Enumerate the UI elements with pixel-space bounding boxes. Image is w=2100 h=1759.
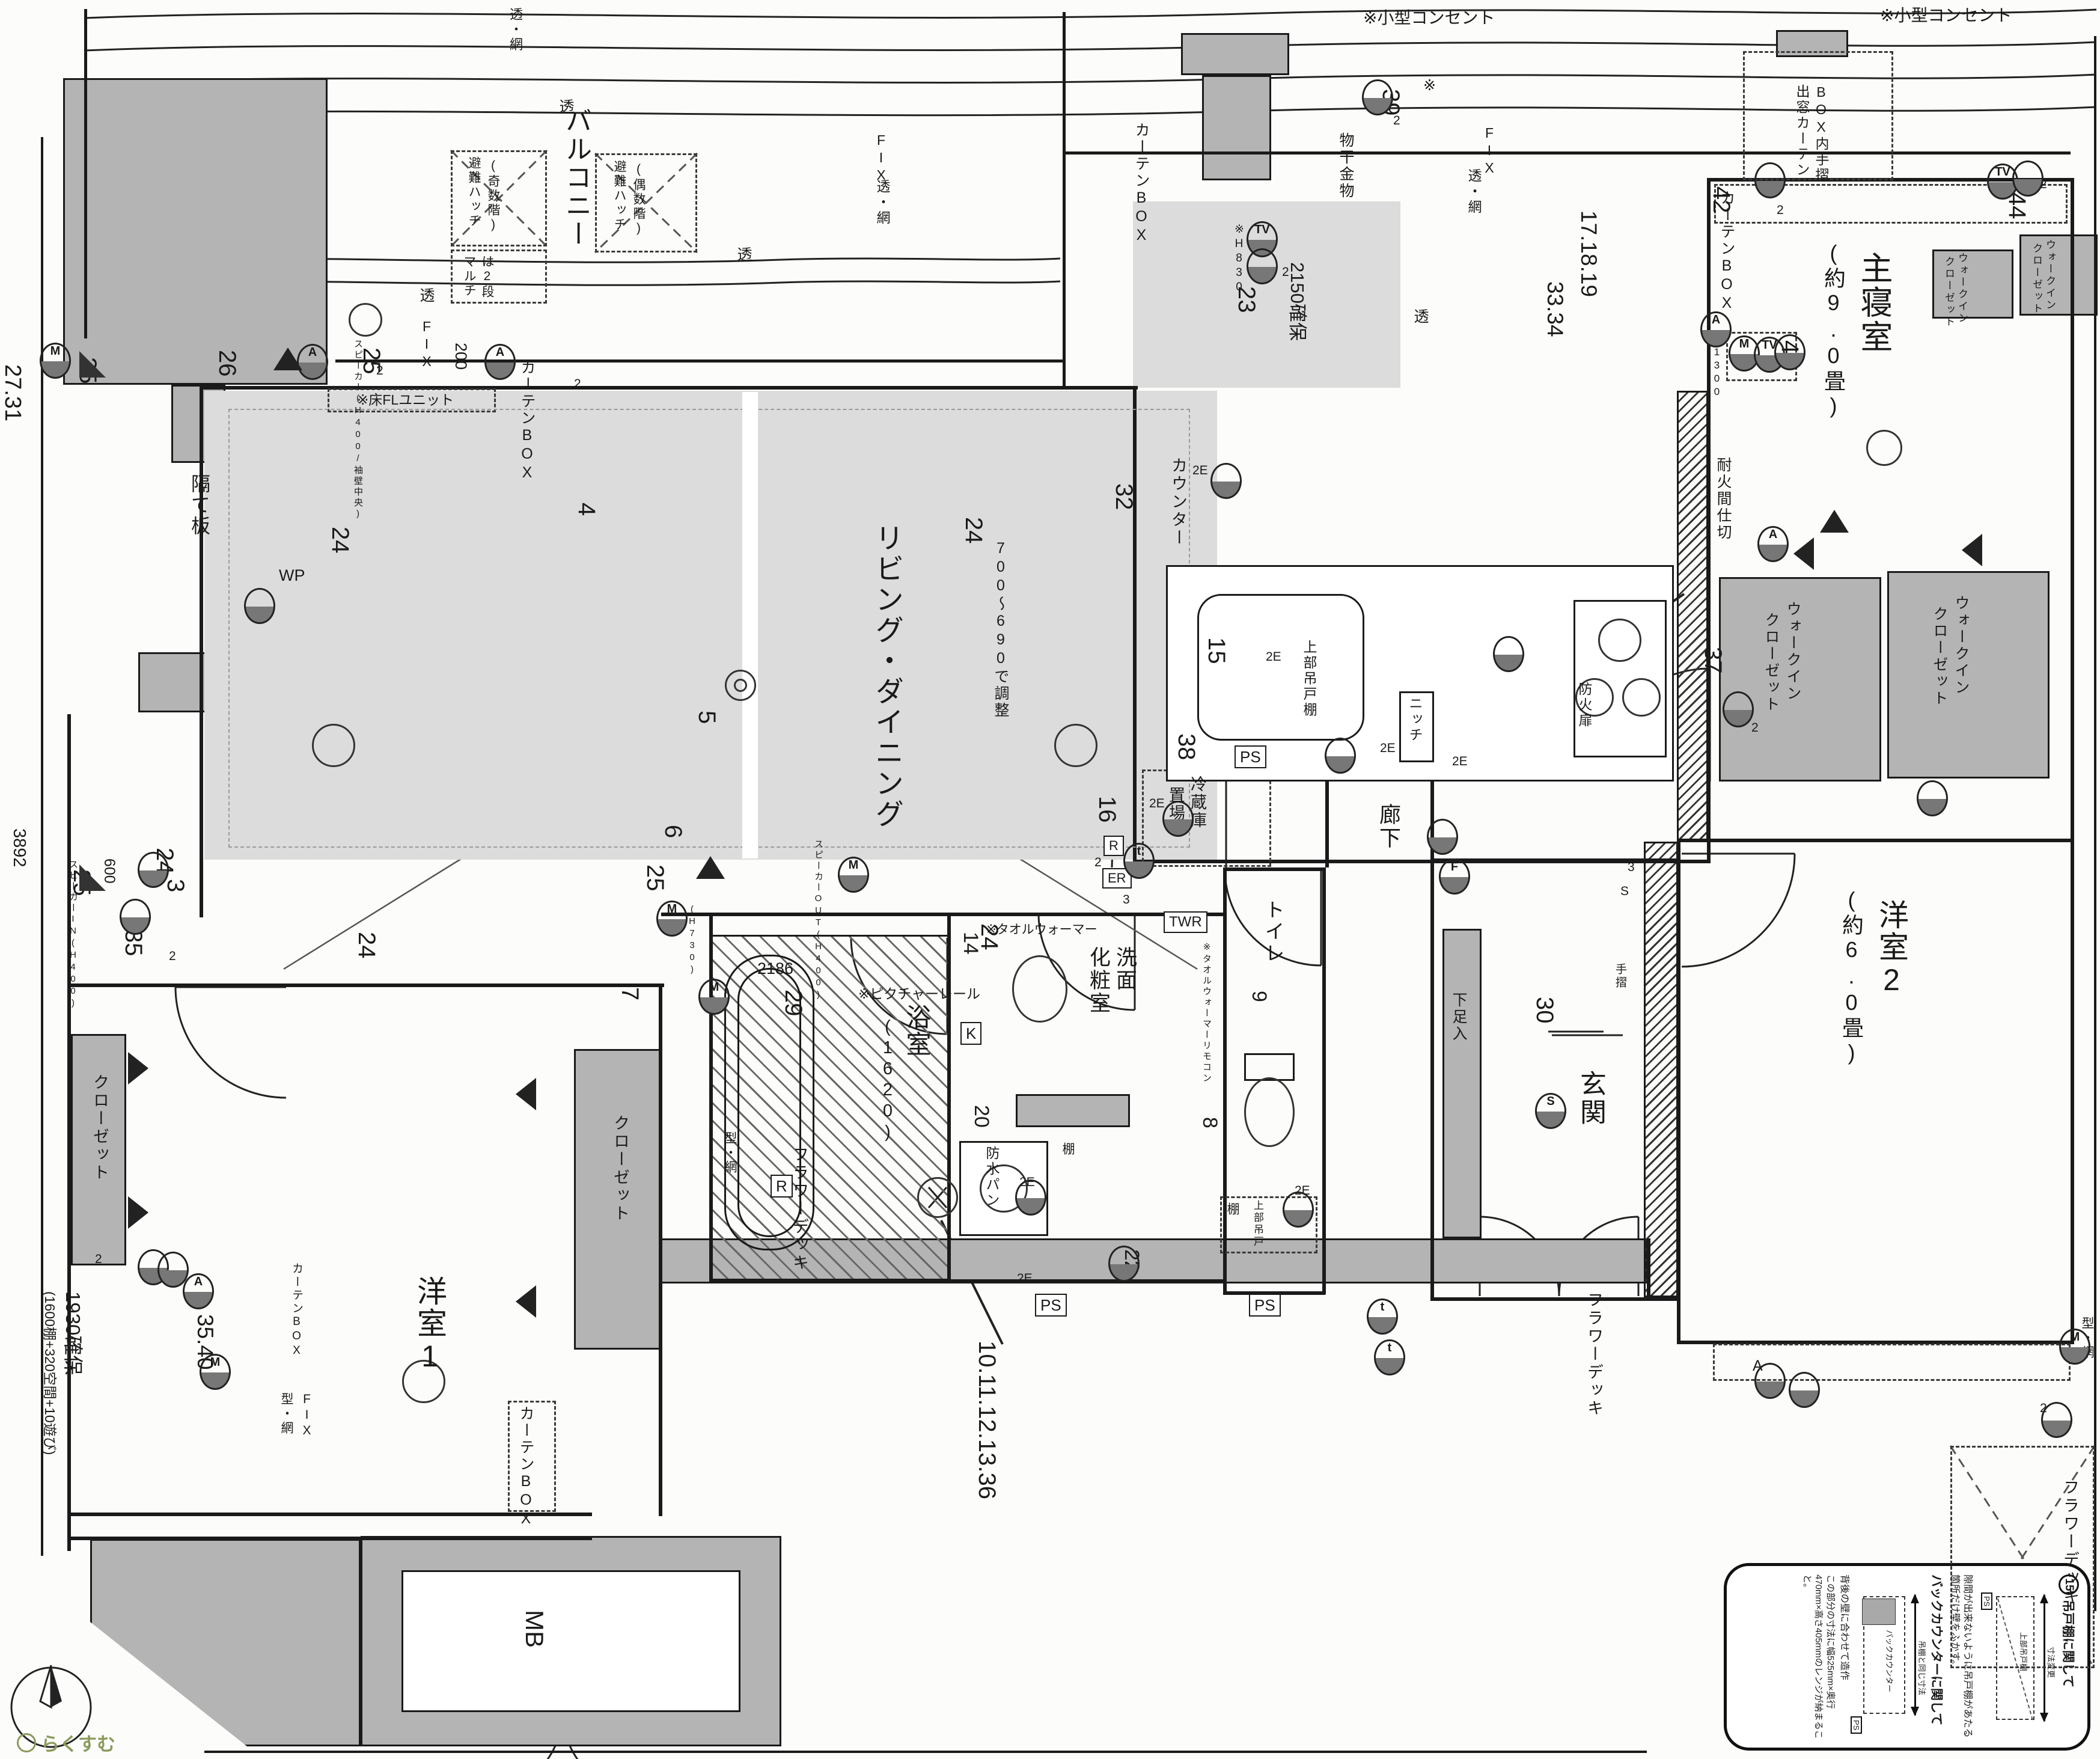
- label-rotated: 23: [1235, 286, 1259, 313]
- outlet-letter: A: [308, 346, 317, 359]
- wall-segment: [69, 1513, 592, 1516]
- watermark-text: らくすむ: [41, 1729, 115, 1756]
- outlet-symbol: A: [183, 1273, 214, 1309]
- label: 2186: [757, 961, 793, 977]
- wall-segment: [335, 359, 1064, 363]
- outlet-symbol: [157, 1252, 189, 1288]
- outlet-symbol: [1493, 636, 1524, 672]
- label-vertical: 棚: [1226, 1202, 1239, 1217]
- label-vertical: フラワーデッキ: [2062, 1479, 2078, 1605]
- label-vertical: スピーカーOUT(H400): [814, 839, 823, 1002]
- outlet-letter: M: [50, 344, 61, 358]
- door-triangle-icon: [696, 856, 725, 879]
- label-rotated: (1600棚+320空間+10遊び): [43, 1291, 56, 1455]
- label: 2E: [1192, 464, 1208, 477]
- label-rotated: 37: [1701, 647, 1725, 674]
- label-rotated: 4: [575, 503, 599, 516]
- wall-segment: [2071, 178, 2074, 1344]
- wall-segment: [69, 984, 664, 987]
- outlet-letter: S: [1546, 1095, 1554, 1108]
- wall-segment: [1063, 12, 1066, 386]
- wall-segment: [1430, 858, 1434, 1301]
- wall-block: [1202, 75, 1271, 180]
- dashed-outline: [228, 409, 1190, 848]
- label-vertical: カーテンBOX: [291, 1262, 302, 1359]
- wall-segment: [69, 1537, 592, 1540]
- label-vertical: (H730): [688, 904, 697, 976]
- label: 2E: [1380, 742, 1396, 754]
- label-vertical: ウォークイン: [1953, 595, 1968, 696]
- door-triangle-icon: [128, 1052, 148, 1084]
- outlet-symbol: [1108, 1246, 1140, 1282]
- wall-segment: [1430, 1297, 1680, 1301]
- label-rotated: 24: [355, 932, 379, 959]
- label: ※小型コンセント: [1363, 10, 1495, 26]
- outlet-letter: M: [210, 1356, 221, 1369]
- outlet-letter: M: [667, 902, 677, 916]
- outlet-symbol: [1754, 1363, 1786, 1399]
- outlet-symbol: [244, 588, 275, 624]
- label-vertical: マルチ: [463, 255, 475, 298]
- label-rotated: 25: [643, 864, 667, 892]
- outlet-letter: TV: [1995, 165, 2010, 179]
- label-vertical: カーテンBOX: [1134, 122, 1149, 245]
- outlet-symbol: M: [698, 979, 730, 1015]
- wall-segment: [709, 1279, 1226, 1283]
- label: 3: [1123, 893, 1130, 906]
- outlet-symbol: [1210, 463, 1242, 499]
- floor-plan: 15 吊戸棚に関して 寸法変更 上部吊戸棚 PS 隙間が出来ないように吊戸棚があ…: [0, 0, 2100, 1759]
- door-triangle-icon: [1962, 534, 1982, 566]
- fixture-outline: [401, 1570, 740, 1712]
- label-vertical: クローゼット: [1944, 256, 1954, 328]
- label-vertical: 型・網: [724, 1131, 736, 1175]
- label-vertical: 出窓カーテン: [1795, 84, 1809, 178]
- counter-gray-block: [1862, 1598, 1896, 1625]
- label-vertical: ウォークイン: [1785, 601, 1800, 702]
- outlet-letter: A: [1769, 528, 1777, 541]
- room-label-western-room-1: 洋室1: [415, 1276, 445, 1375]
- label-rotated: 10.11.12.13.36: [975, 1341, 999, 1499]
- room-label-washroom: 洗面: [1114, 946, 1135, 992]
- outlet-symbol: [1754, 162, 1786, 198]
- outlet-letter: t: [1137, 845, 1141, 858]
- outlet-symbol: [2041, 1402, 2072, 1438]
- outlet-symbol: [1723, 691, 1754, 727]
- label-vertical: 透: [1412, 308, 1427, 325]
- room-label-living-dining: リビング・ダイニング: [871, 523, 900, 830]
- label-vertical: 隔て板: [190, 474, 209, 537]
- label-rotated: 3: [163, 879, 188, 892]
- label-vertical: FIX: [1482, 125, 1496, 177]
- outlet-symbol: [2012, 161, 2044, 197]
- label-rotated: 25: [359, 347, 383, 375]
- wall-segment: [1647, 1238, 1650, 1299]
- label-vertical: 透: [558, 99, 573, 115]
- outlet-letter: F: [1451, 860, 1458, 873]
- label-vertical: フラワーデッキ: [791, 1146, 807, 1272]
- wall-segment: [2094, 36, 2096, 1611]
- boxed-label: PS: [1035, 1294, 1067, 1317]
- label-vertical: 物干金物: [1338, 132, 1353, 200]
- label-vertical: ニッチ: [1408, 696, 1421, 743]
- wall-segment: [709, 913, 713, 1282]
- wall-segment: [200, 386, 203, 917]
- note-section2-text2: この部分の寸法に幅525mm×奥行470mm×高さ405mmのレンジが納まること…: [1801, 1574, 1836, 1739]
- label-rotated: 1930確保: [63, 1291, 83, 1375]
- outlet-symbol: [1362, 79, 1393, 115]
- label-rotated: 200: [453, 343, 469, 370]
- room-label-balcony: バルコニー: [563, 107, 589, 248]
- outlet-letter: TV: [1254, 223, 1270, 236]
- label-rotated: 5: [695, 711, 719, 724]
- label-rotated: 7: [618, 987, 642, 1000]
- outlet-symbol: M: [2059, 1329, 2090, 1365]
- note-section2-text1: 背後の壁に合わせて造作: [1838, 1574, 1851, 1739]
- label: 3: [1628, 861, 1635, 873]
- outlet-symbol: [1917, 780, 1948, 816]
- fireproof-partition-wall: [1677, 391, 1708, 840]
- circle-symbol: [1598, 619, 1641, 662]
- label-vertical: 透・網: [1467, 168, 1480, 215]
- label-vertical: ※H830: [1233, 222, 1245, 295]
- circle-symbol: [734, 679, 747, 692]
- label-vertical: (約6.0畳): [1840, 887, 1862, 1066]
- wall-segment: [659, 984, 662, 1516]
- door-triangle-icon: [273, 347, 302, 370]
- label-vertical: 型・網: [280, 1392, 293, 1436]
- label-rotated: 33.34: [1544, 281, 1566, 337]
- wall-segment: [1707, 178, 1711, 863]
- label: 2: [1751, 721, 1759, 734]
- label-vertical: カーテンBOX: [518, 1406, 533, 1529]
- note-section2-title: バックカウンターに関して: [1928, 1574, 1946, 1725]
- boxed-label: K: [960, 1022, 981, 1045]
- dimension-label: 吊棚と同じ寸法: [1917, 1641, 1926, 1695]
- outlet-symbol: [1325, 738, 1356, 774]
- wall-block: [63, 78, 328, 385]
- outlet-symbol: [138, 852, 169, 888]
- door-triangle-icon: [516, 1078, 536, 1110]
- outlet-symbol: t: [1374, 1339, 1405, 1375]
- label-vertical: 防水パン: [984, 1146, 998, 1208]
- room-label-entrance: 玄関: [1577, 1070, 1604, 1127]
- room-label-hallway: 廊下: [1378, 803, 1399, 850]
- outlet-symbol: t: [1367, 1299, 1398, 1335]
- label-vertical: クローゼット: [1932, 606, 1947, 707]
- boxed-label: PS: [1249, 1294, 1281, 1317]
- label-vertical: 透: [418, 287, 433, 304]
- note-section2-heading: バックカウンターに関して: [1928, 1574, 1946, 1739]
- outlet-symbol: [1789, 1372, 1820, 1408]
- door-triangle-icon: [128, 1196, 148, 1229]
- label-vertical: (偶数階): [632, 162, 645, 237]
- label-rotated: 9: [1249, 991, 1269, 1002]
- label: 2E: [1266, 650, 1281, 663]
- label: WP: [279, 567, 305, 584]
- wall-segment: [204, 1751, 1647, 1753]
- label-vertical: 透・網: [875, 179, 889, 226]
- label: 2: [1777, 204, 1784, 216]
- circle-symbol: [349, 303, 382, 337]
- outlet-symbol: [1162, 801, 1194, 837]
- label-vertical: 透: [736, 246, 751, 263]
- label-vertical: FIX: [301, 1392, 313, 1439]
- outlet-letter: A: [194, 1275, 203, 1288]
- dashed-outline: [595, 153, 697, 252]
- watermark-rakusumu: らくすむ: [17, 1729, 115, 1756]
- circle-symbol: [917, 1177, 958, 1218]
- label: 2E: [1452, 755, 1468, 768]
- label-vertical: 700〜690で調整: [993, 540, 1008, 719]
- outlet-letter: M: [1739, 337, 1750, 350]
- circle-symbol: [1054, 724, 1097, 767]
- wall-segment: [661, 913, 1226, 916]
- outlet-symbol: M: [200, 1354, 231, 1390]
- label-vertical: クローゼット: [2031, 243, 2042, 315]
- label: ※床FLユニット: [357, 393, 454, 407]
- outlet-symbol: [1015, 1179, 1046, 1216]
- label: 2E: [1149, 797, 1165, 810]
- outlet-letter: t: [1381, 1300, 1385, 1314]
- outlet-letter: M: [2070, 1330, 2080, 1344]
- wall-segment: [1677, 839, 1680, 1344]
- wall-segment: [1430, 858, 1680, 862]
- outlet-symbol: A: [484, 344, 516, 380]
- wall-segment: [84, 9, 87, 338]
- label-rotated: 29: [781, 990, 805, 1017]
- label-rotated: 42: [1709, 186, 1733, 213]
- label-vertical: 手摺: [1614, 963, 1626, 990]
- outlet-symbol: A: [1757, 526, 1789, 562]
- note-figure-back-counter: 吊棚と同じ寸法 バックカウンター PS: [1852, 1574, 1924, 1739]
- room-label-master-bedroom: 主寝室: [1857, 251, 1890, 354]
- door-triangle-icon: [1820, 510, 1849, 533]
- label-vertical: カウンター: [1170, 457, 1186, 547]
- fixture-outline: [742, 392, 758, 858]
- label-vertical: (約9.0畳): [1822, 240, 1844, 420]
- outlet-symbol: [1283, 1192, 1314, 1228]
- label: S: [1620, 885, 1629, 898]
- label-vertical: 上部吊戸棚: [1302, 640, 1316, 718]
- dimension-arrow: [1914, 1595, 1916, 1715]
- label-rotated: 27.31: [1, 364, 24, 421]
- outlet-letter: A: [1712, 313, 1720, 326]
- label-rotated: 24: [962, 517, 986, 544]
- circle-symbol: [1622, 678, 1661, 717]
- room-label-western-room-2: 洋室2: [1876, 899, 1906, 999]
- wall-block: [90, 1539, 361, 1746]
- wall-segment: [1677, 839, 2074, 842]
- label-vertical: クローゼット: [1763, 612, 1778, 713]
- fireproof-partition-wall: [1644, 842, 1678, 1297]
- label-rotated: 26: [215, 350, 239, 377]
- wall-block: [1442, 929, 1482, 1238]
- wall-block: [1016, 1094, 1130, 1127]
- wall-block: [1181, 33, 1289, 75]
- label-vertical: 化粧室: [1088, 946, 1109, 1015]
- label-rotated: 3892: [10, 828, 28, 867]
- circle-symbol: [1866, 430, 1902, 466]
- label-vertical: 透・網: [508, 7, 522, 52]
- room-label-toilet: トイレ: [1263, 899, 1283, 964]
- label-vertical: クローゼット: [612, 1115, 628, 1223]
- outlet-symbol: M: [656, 901, 688, 937]
- label-vertical: ウォークイン: [2045, 239, 2055, 311]
- wall-segment: [947, 913, 951, 1282]
- leaf-icon: [17, 1733, 36, 1752]
- label-vertical: BOX内手摺: [1814, 84, 1828, 183]
- wall-segment: [1322, 867, 1326, 1294]
- wall-segment: [67, 714, 71, 1551]
- back-counter-label: バックカウンター: [1884, 1630, 1893, 1692]
- outlet-symbol: S: [1535, 1093, 1566, 1129]
- door-triangle-icon: [79, 864, 106, 891]
- boxed-label: TWR: [1164, 911, 1207, 933]
- outlet-letter: A: [496, 346, 504, 359]
- label-rotated: 16: [1095, 796, 1119, 823]
- label-vertical: 避難ハッチ: [468, 156, 480, 228]
- outlet-symbol: t: [1123, 843, 1155, 879]
- label-vertical: ウォークイン: [1957, 252, 1967, 325]
- outlet-symbol: [120, 899, 151, 935]
- room-label-bathroom: 浴室: [904, 1004, 929, 1058]
- wall-segment: [1064, 151, 2071, 154]
- label-vertical: (奇数階): [487, 159, 499, 233]
- outlet-symbol: M: [838, 857, 869, 893]
- circle-symbol: [1244, 1077, 1295, 1147]
- label-rotated: 8: [1200, 1117, 1220, 1128]
- label-rotated: 30: [1533, 997, 1557, 1024]
- label-vertical: 防火扉: [1577, 682, 1591, 729]
- door-triangle-icon: [79, 351, 106, 378]
- door-triangle-icon: [1793, 537, 1814, 570]
- circle-symbol: [312, 724, 355, 767]
- label-vertical: クローゼット: [91, 1074, 108, 1182]
- outlet-symbol: M: [40, 343, 71, 379]
- label-rotated: 2150確保: [1288, 262, 1307, 341]
- label-vertical: 避難ハッチ: [613, 160, 626, 232]
- label: 2E: [1017, 1272, 1033, 1285]
- label-vertical: (1620): [879, 1017, 896, 1143]
- label: ※小型コンセント: [1880, 7, 2012, 24]
- label-vertical: 下足入: [1451, 992, 1466, 1042]
- label: 2: [95, 1253, 102, 1265]
- label: 2: [1094, 856, 1102, 869]
- label-rotated: 20: [971, 1105, 992, 1128]
- label-rotated: MB: [522, 1610, 547, 1648]
- boxed-label: R: [1103, 836, 1124, 856]
- outlet-symbol: [1247, 248, 1278, 284]
- ps-label: PS: [1851, 1716, 1862, 1734]
- outlet-symbol: [1427, 819, 1458, 855]
- outlet-letter: M: [849, 858, 859, 872]
- label: ※ピクチャーレール: [858, 987, 980, 1001]
- label-vertical: ※タオルウォーマーリモコン: [1202, 941, 1211, 1084]
- label-vertical: カーテンBOX: [519, 359, 534, 483]
- label: 2: [169, 950, 176, 962]
- wall-segment: [1223, 867, 1325, 871]
- label: 2: [1393, 114, 1400, 127]
- label-rotated: 17.18.19: [1578, 210, 1600, 297]
- circle-symbol: [1012, 955, 1067, 1023]
- label-rotated: 32: [1112, 483, 1136, 510]
- boxed-label: PS: [1235, 745, 1266, 768]
- label-vertical: FIX: [874, 132, 888, 185]
- outlet-letter: t: [1388, 1341, 1392, 1354]
- label: 2: [574, 378, 581, 390]
- outlet-symbol: [1774, 334, 1805, 370]
- label-vertical: FIX: [420, 319, 433, 371]
- label-vertical: 上部吊戸: [1253, 1200, 1263, 1248]
- label-rotated: 15: [1204, 637, 1229, 664]
- outlet-symbol: A: [1700, 311, 1732, 347]
- label-rotated: 6: [661, 825, 685, 838]
- label-vertical: は2段: [481, 255, 493, 299]
- label-rotated: 24: [328, 527, 352, 554]
- boxed-label: R: [771, 1175, 793, 1198]
- label-rotated: 38: [1174, 733, 1198, 760]
- outlet-letter: M: [709, 980, 719, 994]
- outlet-symbol: F: [1439, 858, 1470, 895]
- label: ※: [1423, 78, 1436, 93]
- label-vertical: 耐火間仕切: [1715, 457, 1730, 541]
- fixture-outline: [1197, 594, 1364, 741]
- label-vertical: 棚: [1061, 1142, 1074, 1157]
- label-rotated: 14: [960, 932, 981, 955]
- door-triangle-icon: [516, 1285, 536, 1318]
- label-vertical: フラワーデッキ: [1586, 1291, 1602, 1418]
